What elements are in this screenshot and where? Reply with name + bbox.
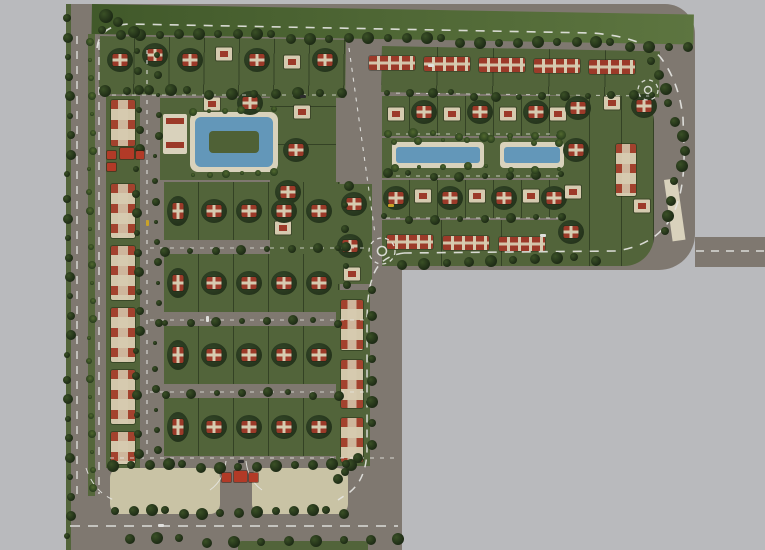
villa [383, 186, 409, 210]
villa [107, 48, 133, 72]
tree [153, 154, 157, 158]
townhouse-strip [111, 100, 135, 146]
tree [196, 508, 208, 520]
tree [428, 88, 438, 98]
tree [134, 85, 144, 95]
villa-sq [497, 104, 519, 124]
tree [625, 42, 635, 52]
club-building-roof-a [166, 118, 184, 124]
tree [286, 34, 296, 44]
tree [448, 89, 454, 95]
villa [437, 186, 463, 210]
townhouse-strip [616, 144, 636, 196]
villa [201, 199, 227, 223]
villa-v [167, 196, 189, 226]
tree [134, 249, 142, 257]
villa [558, 220, 584, 244]
tree [63, 394, 73, 404]
tree [676, 160, 688, 172]
tree [179, 509, 189, 519]
palm-tree [391, 139, 397, 145]
townhouse-strip [111, 370, 135, 424]
villa [271, 343, 297, 367]
tree [132, 390, 142, 400]
tree [677, 130, 689, 142]
tree [252, 462, 262, 472]
tree [64, 171, 70, 177]
tree [123, 87, 131, 95]
villa-sq [562, 182, 584, 202]
villa [283, 138, 309, 162]
tree [464, 257, 474, 267]
tree [384, 34, 392, 42]
tree [660, 83, 672, 95]
palm-tree [531, 166, 539, 174]
tree [136, 126, 144, 134]
tree [322, 506, 330, 514]
palm-tree [531, 132, 539, 140]
townhouse-strip [341, 300, 363, 350]
tree [342, 460, 350, 468]
villa-sq [520, 186, 542, 206]
tree [152, 198, 160, 206]
tree [233, 29, 243, 39]
palm-tree [555, 139, 563, 147]
tree [683, 42, 693, 52]
tree [337, 88, 347, 98]
entrance-gate [222, 473, 231, 482]
twin-house [369, 56, 415, 70]
villa [201, 343, 227, 367]
tree [134, 67, 142, 75]
palm-tree [384, 130, 392, 138]
villa [491, 186, 517, 210]
tree [366, 535, 376, 545]
townhouse-strip [111, 308, 135, 362]
tree [175, 534, 183, 542]
tree [129, 506, 139, 516]
tree [187, 319, 195, 327]
tree [160, 247, 170, 257]
palm-tree [508, 137, 512, 141]
car [428, 64, 434, 67]
tree [629, 90, 639, 100]
tree [313, 243, 323, 253]
villa-sq [291, 102, 313, 122]
twin-house [589, 60, 635, 74]
villa [271, 199, 297, 223]
car [238, 460, 244, 463]
palm-tree [271, 106, 277, 112]
club-building-roof-b [166, 142, 184, 148]
tree [664, 99, 672, 107]
tree [558, 213, 566, 221]
villa-sq [466, 186, 488, 206]
villa-sq [412, 186, 434, 206]
villa [565, 96, 591, 120]
inner-corner-curve [402, 270, 440, 308]
tree [165, 84, 177, 96]
tree [368, 355, 376, 363]
townhouse-strip [111, 246, 135, 300]
palm-tree [222, 108, 228, 114]
entrance-gate [136, 151, 144, 159]
tree [381, 213, 387, 219]
tree [214, 462, 226, 474]
tree [421, 32, 433, 44]
tree [367, 376, 377, 386]
tree [154, 52, 160, 58]
tree [643, 41, 655, 53]
palm-tree [90, 467, 96, 473]
tree [156, 300, 162, 306]
tree [63, 376, 71, 384]
tree [310, 317, 316, 323]
tree [485, 255, 497, 267]
tree [285, 389, 291, 395]
palm-tree [430, 130, 436, 136]
tree [340, 536, 348, 544]
villa [236, 199, 262, 223]
palm-tree [440, 164, 446, 170]
tree [154, 427, 160, 433]
tree [335, 245, 341, 251]
car [388, 204, 394, 207]
site-map [0, 0, 765, 550]
palm-tree [87, 167, 91, 171]
tree [368, 286, 376, 294]
villa [306, 343, 332, 367]
palm-tree [88, 430, 96, 438]
tree [470, 93, 478, 101]
tree [316, 89, 324, 97]
tree [271, 89, 281, 99]
villa [236, 271, 262, 295]
villa [306, 199, 332, 223]
tree [341, 468, 349, 476]
villa [244, 48, 270, 72]
twin-house [387, 235, 433, 249]
tree [64, 533, 70, 539]
tree [437, 34, 445, 42]
tree [202, 538, 212, 548]
tree [64, 352, 70, 358]
tree [65, 272, 75, 282]
tree [288, 245, 296, 253]
tree [263, 387, 273, 397]
tree [133, 166, 139, 172]
tree [154, 446, 162, 454]
tree [67, 493, 75, 501]
tree [482, 173, 488, 179]
tree [495, 39, 503, 47]
villa-sq [441, 104, 463, 124]
tree [366, 332, 378, 344]
tree [267, 30, 275, 38]
tree [65, 91, 75, 101]
club-pool-island [209, 131, 259, 153]
tree [570, 253, 578, 261]
tree [585, 93, 591, 99]
villa-v [167, 268, 189, 298]
road-stub-east [695, 237, 765, 267]
tree [333, 474, 343, 484]
tree [288, 315, 298, 325]
palm-tree [90, 130, 96, 136]
villa [523, 100, 549, 124]
tree [474, 37, 486, 49]
palm-tree [189, 108, 197, 116]
tree [65, 254, 73, 262]
tree [343, 281, 351, 289]
pool2-water [504, 147, 560, 163]
tree [125, 534, 135, 544]
tree [134, 449, 144, 459]
tree [99, 85, 111, 97]
tree [63, 214, 73, 224]
villa-v [167, 412, 189, 442]
tree [341, 225, 349, 233]
villa [306, 415, 332, 439]
villa [236, 343, 262, 367]
tree [132, 372, 140, 380]
tree [366, 396, 378, 408]
twin-house [534, 59, 580, 73]
tree [154, 408, 158, 412]
tree [154, 71, 162, 79]
car [540, 234, 546, 237]
twin-house [499, 237, 545, 251]
car [300, 95, 306, 98]
tree [154, 258, 162, 266]
palm-tree [88, 244, 94, 250]
car [206, 316, 209, 322]
tree [270, 460, 282, 472]
tree [263, 317, 271, 325]
twin-house [479, 58, 525, 72]
villa [563, 138, 589, 162]
villa [271, 415, 297, 439]
tree [342, 202, 348, 208]
townhouse-strip [341, 360, 363, 408]
tree [430, 215, 440, 225]
car [146, 220, 149, 226]
villa-sq [631, 196, 653, 216]
entrance-gate [234, 471, 247, 482]
palm-tree [88, 92, 96, 100]
tree [392, 533, 404, 545]
tree [116, 30, 126, 40]
tree [310, 535, 322, 547]
tree [654, 70, 664, 80]
tree [67, 113, 73, 119]
tree [250, 90, 258, 98]
tree [113, 17, 123, 27]
tree [162, 391, 170, 399]
villa [306, 271, 332, 295]
tree [226, 88, 238, 100]
palm-tree [86, 38, 94, 46]
palm-tree [88, 413, 94, 419]
palm-tree [87, 336, 91, 340]
villa [467, 100, 493, 124]
villa-sq [213, 44, 235, 64]
tree [234, 508, 244, 518]
tree [289, 506, 299, 516]
palm-tree [222, 170, 230, 178]
roundabout-center-green [378, 247, 386, 255]
tree [212, 247, 220, 255]
twin-house [443, 236, 489, 250]
villa [271, 271, 297, 295]
villa [201, 415, 227, 439]
villa [177, 48, 203, 72]
villa [236, 415, 262, 439]
tree [307, 504, 319, 516]
tree [513, 38, 523, 48]
tree [680, 146, 690, 156]
palm-tree [391, 164, 399, 172]
master-plan-screenshot [0, 0, 765, 550]
tree [367, 311, 377, 321]
villa-v [167, 340, 189, 370]
villa [411, 100, 437, 124]
palm-tree [88, 261, 96, 269]
villa-sq [385, 104, 407, 124]
villa [201, 271, 227, 295]
entrance-gate [107, 163, 116, 171]
tree [133, 348, 139, 354]
tree [65, 73, 73, 81]
entrance-gate [249, 473, 258, 482]
townhouse-strip [111, 432, 135, 464]
tree [156, 281, 160, 285]
tree [98, 26, 106, 34]
tree [134, 267, 144, 277]
tree [67, 312, 75, 320]
tree [193, 28, 205, 40]
tree [670, 177, 678, 185]
tree [367, 440, 377, 450]
tree [304, 33, 316, 45]
tree [178, 460, 186, 468]
palm-tree [464, 137, 470, 143]
tree [284, 536, 294, 546]
entrance-gate [107, 151, 116, 159]
tree [649, 92, 655, 98]
tree [156, 31, 164, 39]
tree [155, 132, 163, 140]
palm-tree [207, 172, 213, 178]
palm-tree [464, 162, 472, 170]
tree [65, 453, 75, 463]
villa [312, 48, 338, 72]
tree [63, 33, 73, 43]
tree [163, 458, 175, 470]
tree [161, 506, 169, 514]
villa-sq [281, 52, 303, 72]
tree [145, 460, 155, 470]
pool1-water [396, 147, 480, 163]
tree [606, 38, 614, 46]
palm-tree [255, 170, 261, 176]
palm-tree [86, 207, 94, 215]
tree [132, 190, 140, 198]
tree [665, 43, 673, 51]
tree [334, 391, 344, 401]
tree [251, 28, 263, 40]
tree [506, 213, 516, 223]
car [158, 524, 164, 527]
tree [443, 259, 451, 267]
tree [136, 289, 142, 295]
tree [107, 460, 119, 472]
tree [572, 37, 582, 47]
entrance-gate [120, 148, 134, 159]
